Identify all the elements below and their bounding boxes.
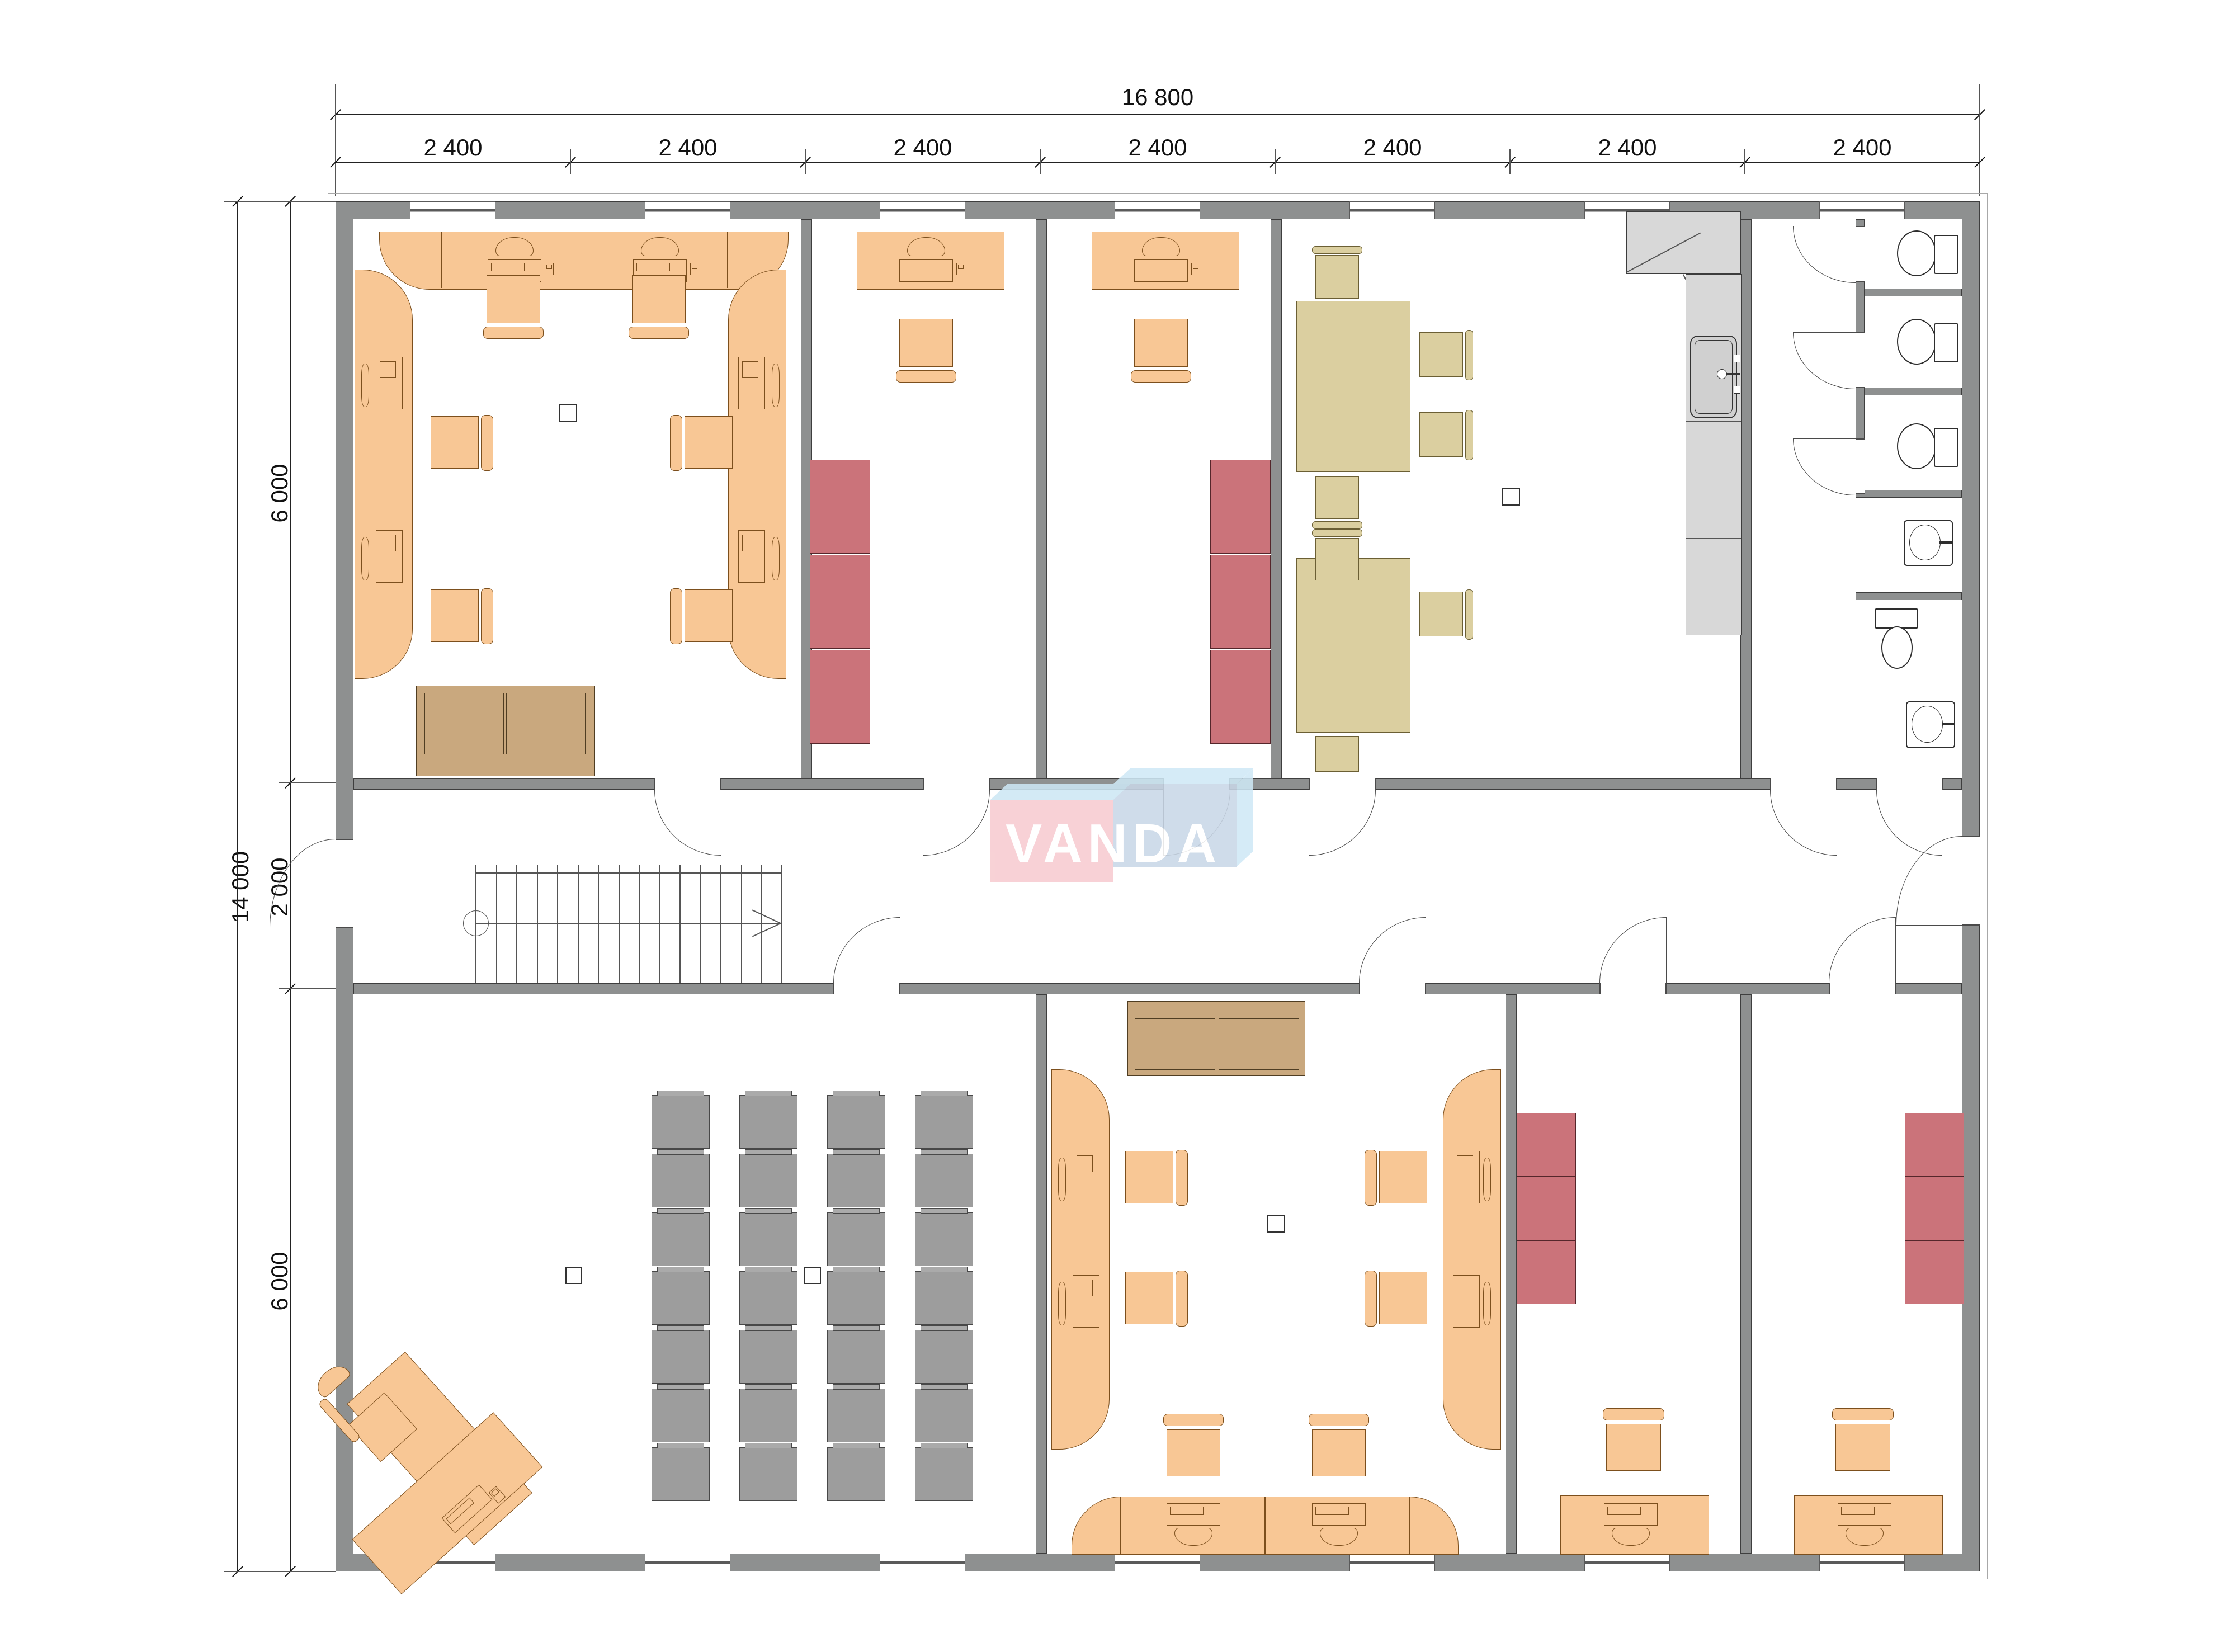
faucet-handle-icon [1734, 386, 1740, 394]
storage-cabinet [1905, 1177, 1964, 1240]
window [1819, 1554, 1905, 1571]
dimension-label-bay: 2 400 [1107, 134, 1208, 161]
computer [738, 530, 765, 583]
toilet-tank [1934, 323, 1958, 362]
extension-line [805, 149, 806, 174]
sofa-seat [1219, 1018, 1299, 1070]
dimension-label-total-width: 16 800 [1091, 84, 1225, 111]
training-chair [652, 1212, 710, 1266]
door-opening [833, 983, 900, 994]
office-chair [899, 319, 953, 367]
chair-back [1603, 1408, 1664, 1420]
window [1115, 1554, 1200, 1571]
sofa-seat [424, 693, 504, 754]
office-chair [1606, 1424, 1661, 1471]
training-chair [652, 1447, 710, 1501]
door-opening [1876, 778, 1943, 790]
chair-back [1176, 1271, 1188, 1327]
door-opening [1309, 778, 1376, 790]
monitor [772, 537, 780, 580]
sofa [1127, 1001, 1305, 1076]
training-chair [739, 1095, 797, 1149]
door-opening [1770, 778, 1837, 790]
computer [1453, 1275, 1480, 1328]
window [1349, 1554, 1435, 1571]
monitor [1058, 1158, 1066, 1201]
conference-table [1296, 301, 1410, 472]
window [645, 1554, 730, 1571]
training-chair [739, 1154, 797, 1207]
computer [1453, 1151, 1480, 1203]
stair-start-circle [463, 910, 489, 936]
training-chair [739, 1330, 797, 1384]
monitor [772, 364, 780, 407]
conference-chair [1315, 255, 1359, 299]
kitchen-counter-divider [1686, 538, 1741, 539]
monitor [1058, 1282, 1066, 1325]
monitor [361, 364, 369, 407]
column [804, 1267, 821, 1284]
window [410, 201, 495, 219]
chair-back [896, 370, 956, 383]
conference-chair [1315, 736, 1359, 772]
training-chair [739, 1212, 797, 1266]
toilet-bowl [1881, 626, 1913, 669]
watermark-blue-side-face [1237, 768, 1253, 867]
conference-table [1296, 558, 1410, 733]
dimension-label-bay: 2 400 [872, 134, 973, 161]
training-chair [827, 1271, 885, 1325]
extension-line [1275, 149, 1276, 174]
extension-line [224, 1571, 336, 1572]
monitor [1483, 1158, 1491, 1201]
door-opening [1856, 226, 1865, 282]
office-chair [1379, 1272, 1427, 1324]
training-chair [915, 1330, 973, 1384]
column [559, 404, 577, 422]
conference-chair [1315, 538, 1359, 580]
watermark-pink-top-face [990, 784, 1130, 800]
dimension-label-bay: 2 400 [403, 134, 503, 161]
office-chair [1134, 319, 1188, 367]
desk-counter [1051, 1069, 1110, 1450]
sofa-seat [506, 693, 586, 754]
storage-cabinet [1517, 1113, 1576, 1177]
office-chair [685, 589, 733, 642]
chair-back [670, 415, 682, 471]
stair-rail-line [475, 872, 782, 874]
kitchen-counter [1686, 274, 1742, 635]
faucet-handle-icon [1734, 355, 1740, 362]
window [880, 1554, 965, 1571]
keyboard [1604, 1503, 1658, 1526]
computer [1073, 1275, 1099, 1328]
dimension-label-left: 6 000 [266, 1236, 293, 1326]
door-opening [1599, 983, 1667, 994]
extension-line [1040, 149, 1041, 174]
sofa-seat [1135, 1018, 1215, 1070]
training-chair [827, 1447, 885, 1501]
storage-cabinet [1517, 1240, 1576, 1304]
door-opening [923, 778, 990, 790]
desk-seam [727, 232, 728, 288]
chair-back [1465, 330, 1473, 380]
office-chair [1312, 1429, 1366, 1476]
faucet-icon [1939, 541, 1953, 544]
dimension-label-bay: 2 400 [1812, 134, 1913, 161]
chair-back [670, 588, 682, 644]
toilet-bowl [1897, 319, 1936, 365]
training-chair [739, 1389, 797, 1442]
extension-line [224, 201, 336, 202]
chair-back [1131, 370, 1191, 383]
window [1349, 201, 1435, 219]
conference-chair [1315, 476, 1359, 519]
window [645, 201, 730, 219]
desk-counter [728, 270, 786, 679]
training-chair [652, 1154, 710, 1207]
training-chair [652, 1389, 710, 1442]
interior-wall [1271, 219, 1282, 778]
faucet-icon [1726, 373, 1740, 375]
extension-line [335, 84, 336, 196]
chair-back [1309, 1414, 1369, 1426]
office-chair [1835, 1424, 1890, 1471]
storage-cabinet [810, 460, 870, 554]
training-chair [827, 1154, 885, 1207]
storage-cabinet [1210, 650, 1271, 744]
office-chair [431, 589, 479, 642]
kitchen-counter-divider [1686, 421, 1741, 422]
floor-plan: 16 800 2 400 2 400 2 400 2 400 2 400 2 4… [0, 0, 2237, 1652]
toilet-tank [1934, 428, 1958, 467]
conference-chair [1419, 412, 1463, 457]
dimension-label-bay: 2 400 [1342, 134, 1443, 161]
extension-line [1509, 149, 1511, 174]
chair-back [1365, 1150, 1377, 1206]
door-opening [336, 839, 353, 928]
training-chair [915, 1389, 973, 1442]
chair-back [1312, 529, 1362, 537]
faucet-icon [1942, 723, 1955, 725]
chair-back [1832, 1408, 1894, 1420]
mouse [545, 263, 554, 275]
office-chair [1167, 1429, 1220, 1476]
computer [1073, 1151, 1099, 1203]
chair-back [481, 415, 493, 471]
conference-chair [1419, 332, 1463, 377]
interior-wall [1740, 219, 1752, 778]
dimension-label-bay: 2 400 [638, 134, 738, 161]
mouse [690, 263, 699, 275]
conference-chair [1419, 592, 1463, 636]
dimension-label-bay: 2 400 [1577, 134, 1678, 161]
column [1267, 1215, 1285, 1233]
toilet-tank [1875, 608, 1918, 629]
door-opening [1962, 836, 1980, 926]
office-chair [487, 275, 540, 323]
training-chair [915, 1154, 973, 1207]
wash-basin-bowl [1912, 706, 1943, 743]
keyboard [899, 259, 953, 282]
column [565, 1267, 582, 1284]
keyboard [1134, 259, 1188, 282]
storage-cabinet [810, 555, 870, 649]
dimension-line [336, 114, 1980, 115]
chair-back [483, 327, 544, 339]
chair-back [481, 588, 493, 644]
training-chair [827, 1389, 885, 1442]
wash-basin-bowl [1909, 525, 1941, 560]
window [880, 201, 965, 219]
chair-back [1365, 1271, 1377, 1327]
wc-wall [1856, 490, 1962, 498]
chair-back [1163, 1414, 1224, 1426]
door-opening [654, 778, 721, 790]
mouse [1191, 263, 1200, 275]
wc-stall-divider [1865, 388, 1962, 395]
door-opening [1856, 438, 1865, 494]
monitor [1483, 1282, 1491, 1325]
extension-line [1744, 149, 1745, 174]
monitor [361, 537, 369, 580]
toilet-tank [1934, 235, 1958, 274]
chair-back [629, 327, 689, 339]
dimension-label-left: 6 000 [266, 449, 293, 538]
computer [738, 357, 765, 409]
storage-cabinet [1517, 1177, 1576, 1240]
interior-wall [1740, 994, 1752, 1554]
wc-wall [1856, 592, 1962, 600]
chair-back [1176, 1150, 1188, 1206]
training-chair [827, 1330, 885, 1384]
training-chair [915, 1447, 973, 1501]
training-chair [915, 1095, 973, 1149]
sofa [416, 686, 595, 776]
dimension-line [237, 201, 238, 1571]
chair-back [1465, 589, 1473, 640]
interior-wall [1506, 994, 1517, 1554]
office-chair [431, 416, 479, 469]
chair-back [1312, 246, 1362, 254]
dimension-line [336, 162, 1980, 163]
office-chair [1125, 1272, 1173, 1324]
door-opening [1829, 983, 1896, 994]
office-chair [685, 416, 733, 469]
storage-cabinet [810, 650, 870, 744]
stair-direction-line [476, 923, 781, 924]
desk-counter [355, 270, 413, 679]
door-opening [1359, 983, 1426, 994]
training-chair [739, 1447, 797, 1501]
storage-cabinet [1905, 1113, 1964, 1177]
chair-back [1465, 410, 1473, 460]
computer [376, 357, 403, 409]
training-chair [915, 1271, 973, 1325]
dimension-label-total-height: 14 000 [227, 831, 254, 943]
training-chair [739, 1271, 797, 1325]
extension-line [1979, 84, 1980, 196]
watermark-text: VANDA [990, 812, 1237, 875]
storage-cabinet [1905, 1240, 1964, 1304]
window [1584, 1554, 1670, 1571]
kitchen-sink-basin [1695, 340, 1733, 414]
window [1115, 201, 1200, 219]
training-chair [652, 1271, 710, 1325]
training-chair [652, 1095, 710, 1149]
kitchen-counter [1626, 211, 1741, 274]
interior-wall [1036, 994, 1047, 1554]
storage-cabinet [1210, 555, 1271, 649]
office-chair [632, 275, 686, 323]
extension-line [570, 149, 571, 174]
desk-seam [441, 232, 442, 288]
chair-back [1312, 521, 1362, 529]
door-opening [1856, 332, 1865, 388]
training-chair [915, 1212, 973, 1266]
training-chair [652, 1330, 710, 1384]
wc-stall-divider [1865, 289, 1962, 296]
office-chair [1379, 1151, 1427, 1203]
toilet-bowl [1897, 230, 1936, 276]
keyboard [1838, 1503, 1891, 1526]
office-chair [1125, 1151, 1173, 1203]
keyboard [1312, 1503, 1366, 1526]
interior-wall [1036, 219, 1047, 778]
window [1819, 201, 1905, 219]
training-chair [827, 1212, 885, 1266]
computer [376, 530, 403, 583]
desk-counter [1443, 1069, 1501, 1450]
toilet-bowl [1897, 423, 1936, 469]
watermark-blue-top-face [1113, 768, 1253, 784]
keyboard [1167, 1503, 1220, 1526]
training-chair [827, 1095, 885, 1149]
column [1502, 488, 1520, 506]
mouse [956, 263, 965, 275]
storage-cabinet [1210, 460, 1271, 554]
corridor-wall-bottom [353, 983, 1962, 994]
